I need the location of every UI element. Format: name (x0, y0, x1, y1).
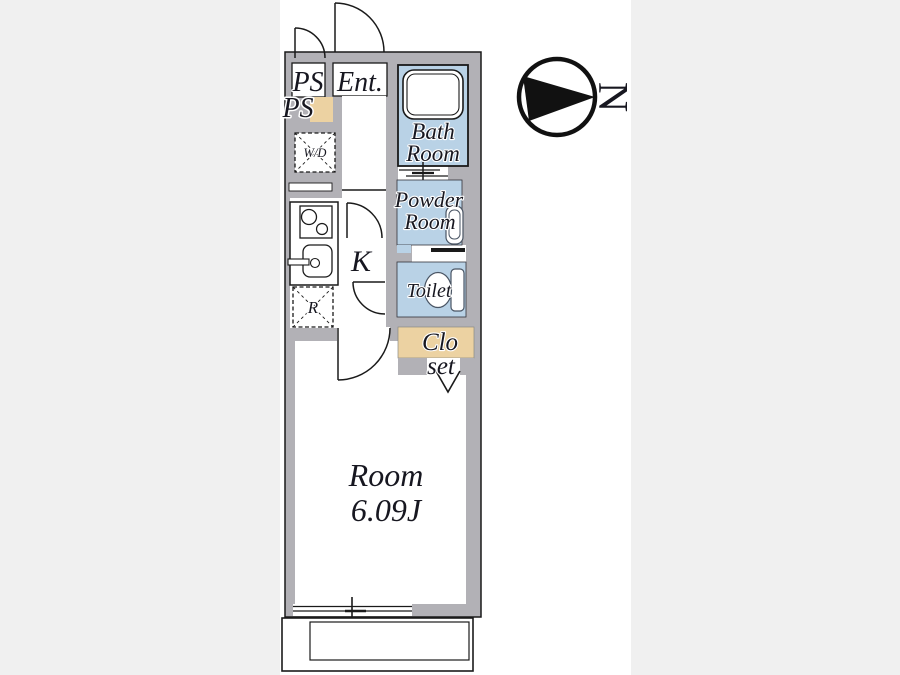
refrigerator-label: R (307, 298, 319, 317)
room-door-opening (337, 327, 390, 341)
compass: N (519, 59, 635, 135)
ps-side-label: PS (281, 93, 313, 124)
kitchen-counter (288, 202, 338, 285)
kitchen-label: K (350, 245, 373, 278)
faucet (288, 259, 309, 265)
powder-toilet-gap (412, 245, 466, 262)
toilet-label: Toilet (407, 280, 452, 302)
compass-north-label: N (589, 82, 635, 112)
balcony (282, 618, 473, 671)
right-background-band (631, 0, 900, 675)
left-wall-window (289, 183, 332, 191)
bathtub (403, 70, 463, 119)
counter-outline (290, 202, 338, 285)
entrance-door-arc (335, 3, 384, 52)
toilet-tank (451, 269, 464, 311)
entrance-label: Ent. (336, 67, 383, 98)
entry-hall (342, 96, 386, 198)
floor-plan-page: N PS Ent. PS W/D Bath Room Powder Room K… (0, 0, 900, 675)
left-background-band (0, 0, 280, 675)
washer-dryer-label: W/D (304, 146, 327, 160)
bath-label-line2: Room (405, 141, 460, 166)
closet-label-line2: set (427, 353, 456, 380)
main-room-label-line2: 6.09J (351, 492, 423, 528)
powder-room-notch (397, 245, 411, 253)
closet-label-line1: Clo (422, 329, 458, 356)
wall-section-marker (431, 248, 465, 252)
balcony-outline (282, 618, 473, 671)
floor-plan-canvas: N PS Ent. PS W/D Bath Room Powder Room K… (0, 0, 900, 675)
main-room-label-line1: Room (348, 457, 424, 493)
powder-label-line2: Room (403, 209, 455, 234)
